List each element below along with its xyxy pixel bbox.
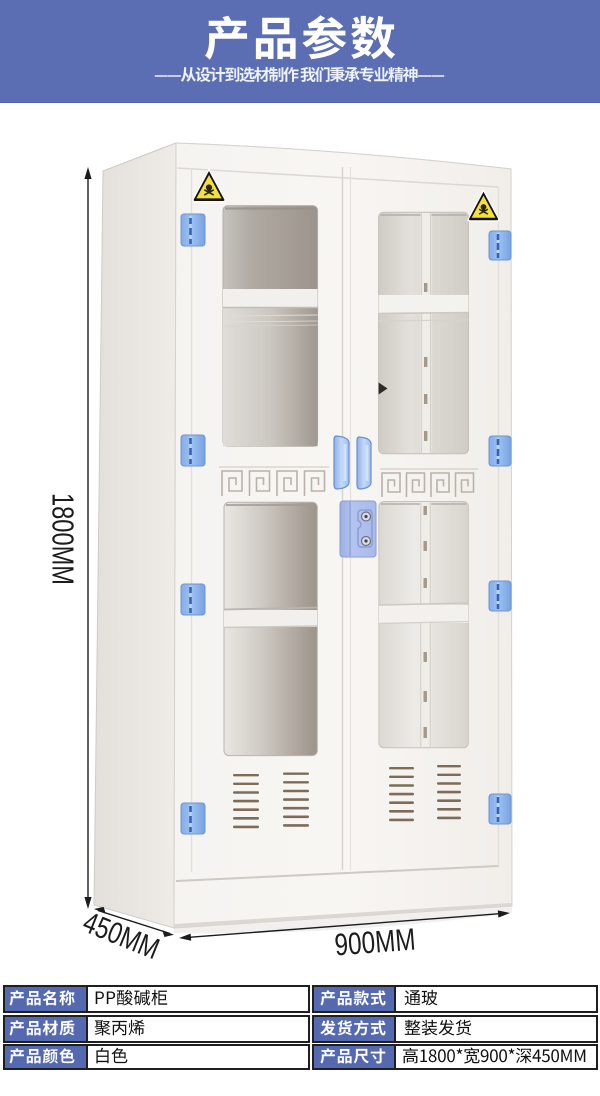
svg-text:900MM: 900MM	[333, 922, 416, 963]
svg-text:1800MM: 1800MM	[46, 493, 81, 585]
